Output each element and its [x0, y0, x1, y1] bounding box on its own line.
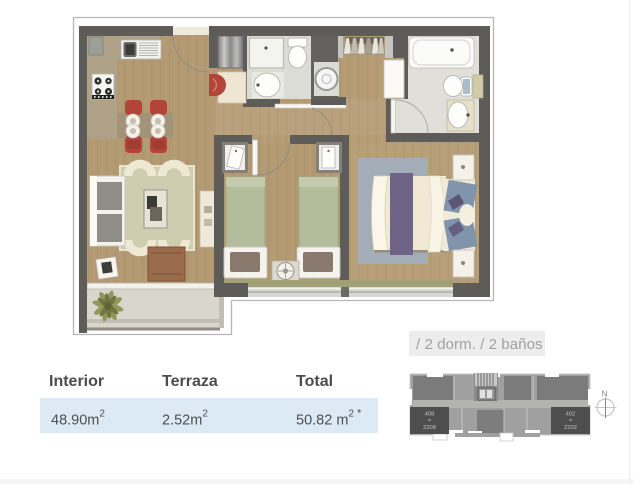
svg-text:Interior: Interior: [49, 373, 104, 390]
svg-text:2208: 2208: [423, 425, 436, 431]
svg-text:Total: Total: [296, 373, 333, 390]
svg-text:2202: 2202: [564, 425, 577, 431]
svg-text:al: al: [569, 418, 572, 422]
svg-text:N: N: [602, 389, 608, 399]
svg-text:/ 2 dorm. / 2 baños: / 2 dorm. / 2 baños: [416, 336, 543, 353]
svg-text:408: 408: [425, 412, 435, 418]
svg-text:al: al: [428, 418, 431, 422]
svg-text:402: 402: [566, 412, 576, 418]
svg-text:Terraza: Terraza: [162, 373, 218, 390]
